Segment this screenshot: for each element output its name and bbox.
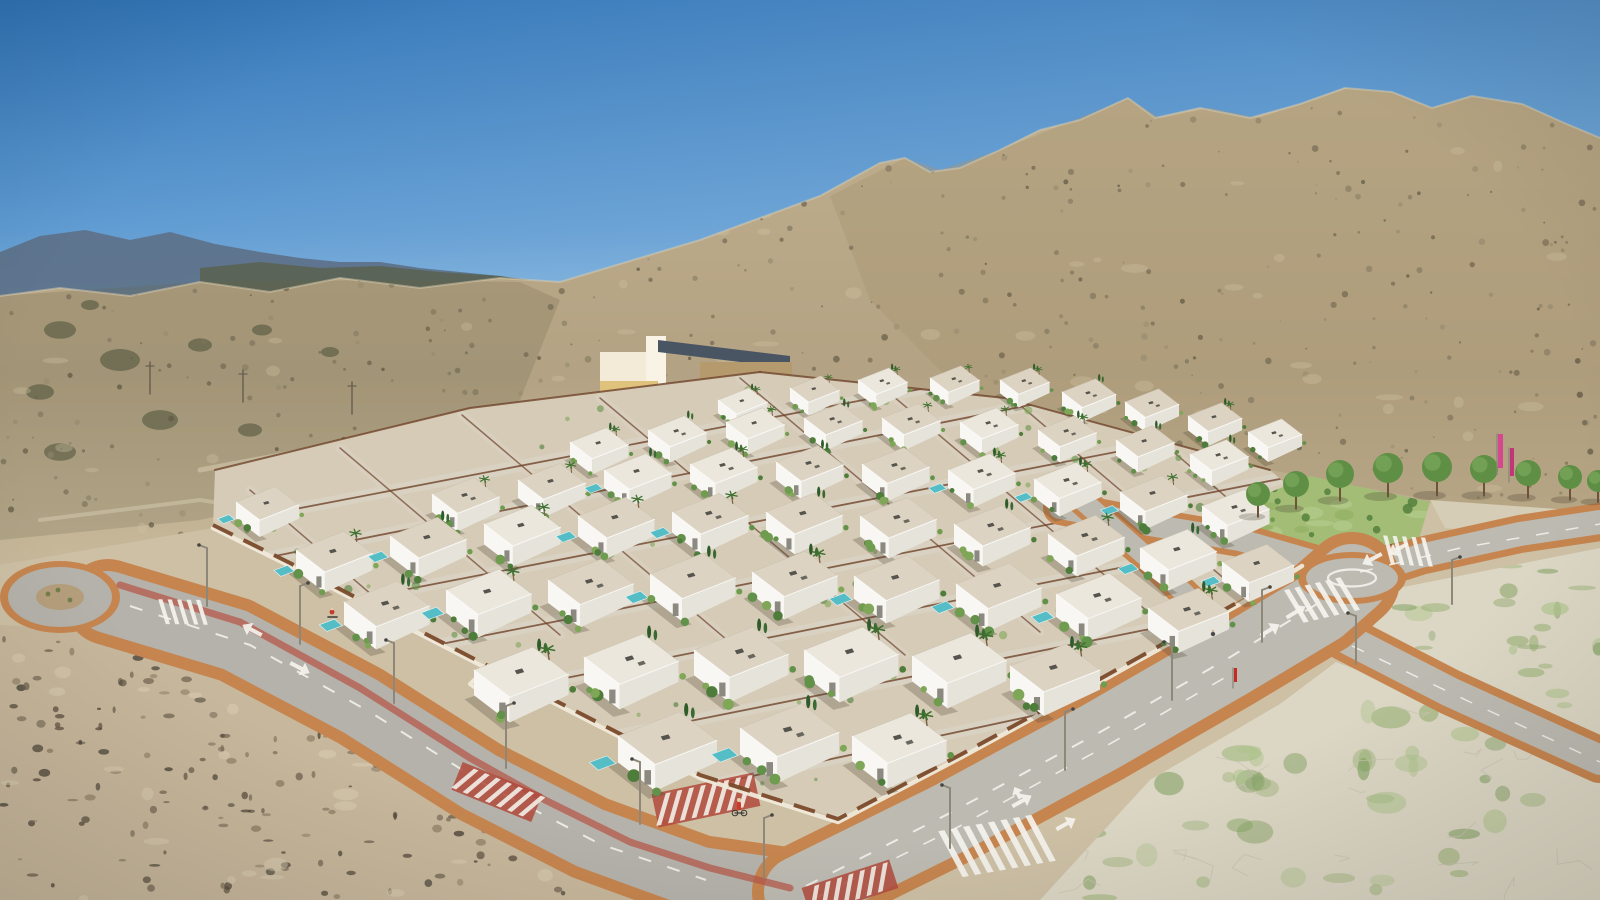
- vignette: [0, 0, 1600, 900]
- aerial-photo-canvas: [0, 0, 1600, 900]
- aerial-photo: [0, 0, 1600, 900]
